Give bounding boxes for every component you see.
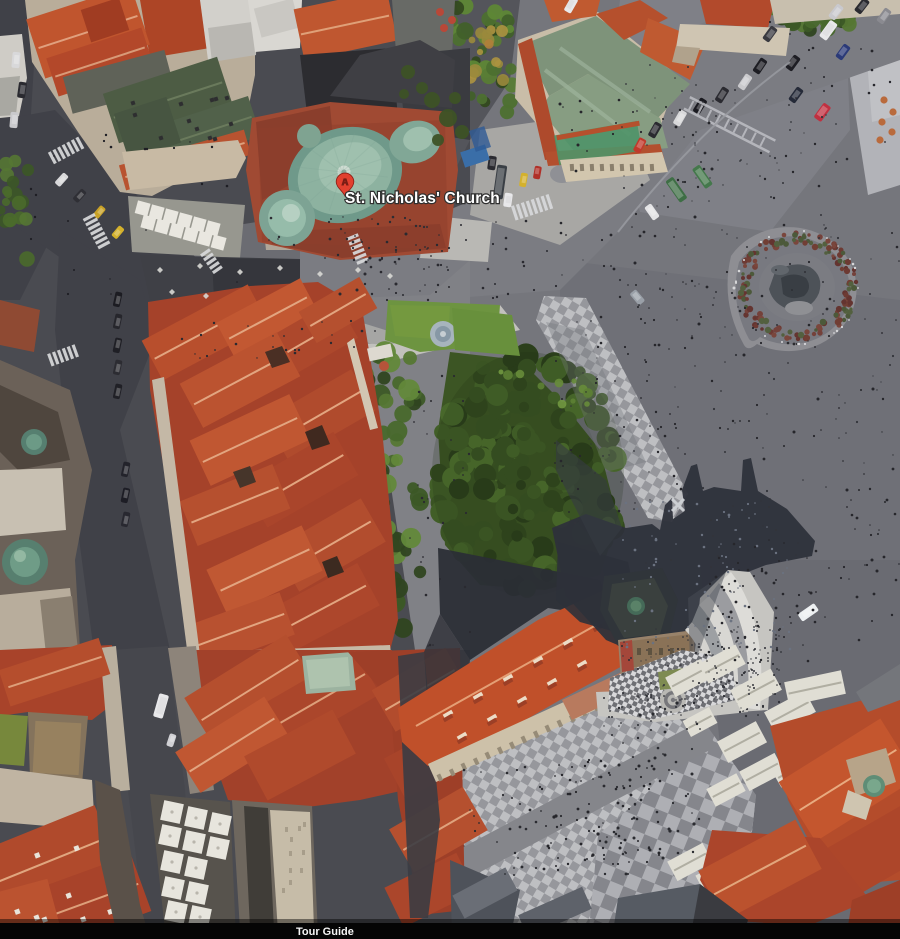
svg-text:Tour Guide: Tour Guide bbox=[296, 926, 354, 938]
svg-text:St. Nicholas' Church: St. Nicholas' Church bbox=[345, 190, 500, 207]
